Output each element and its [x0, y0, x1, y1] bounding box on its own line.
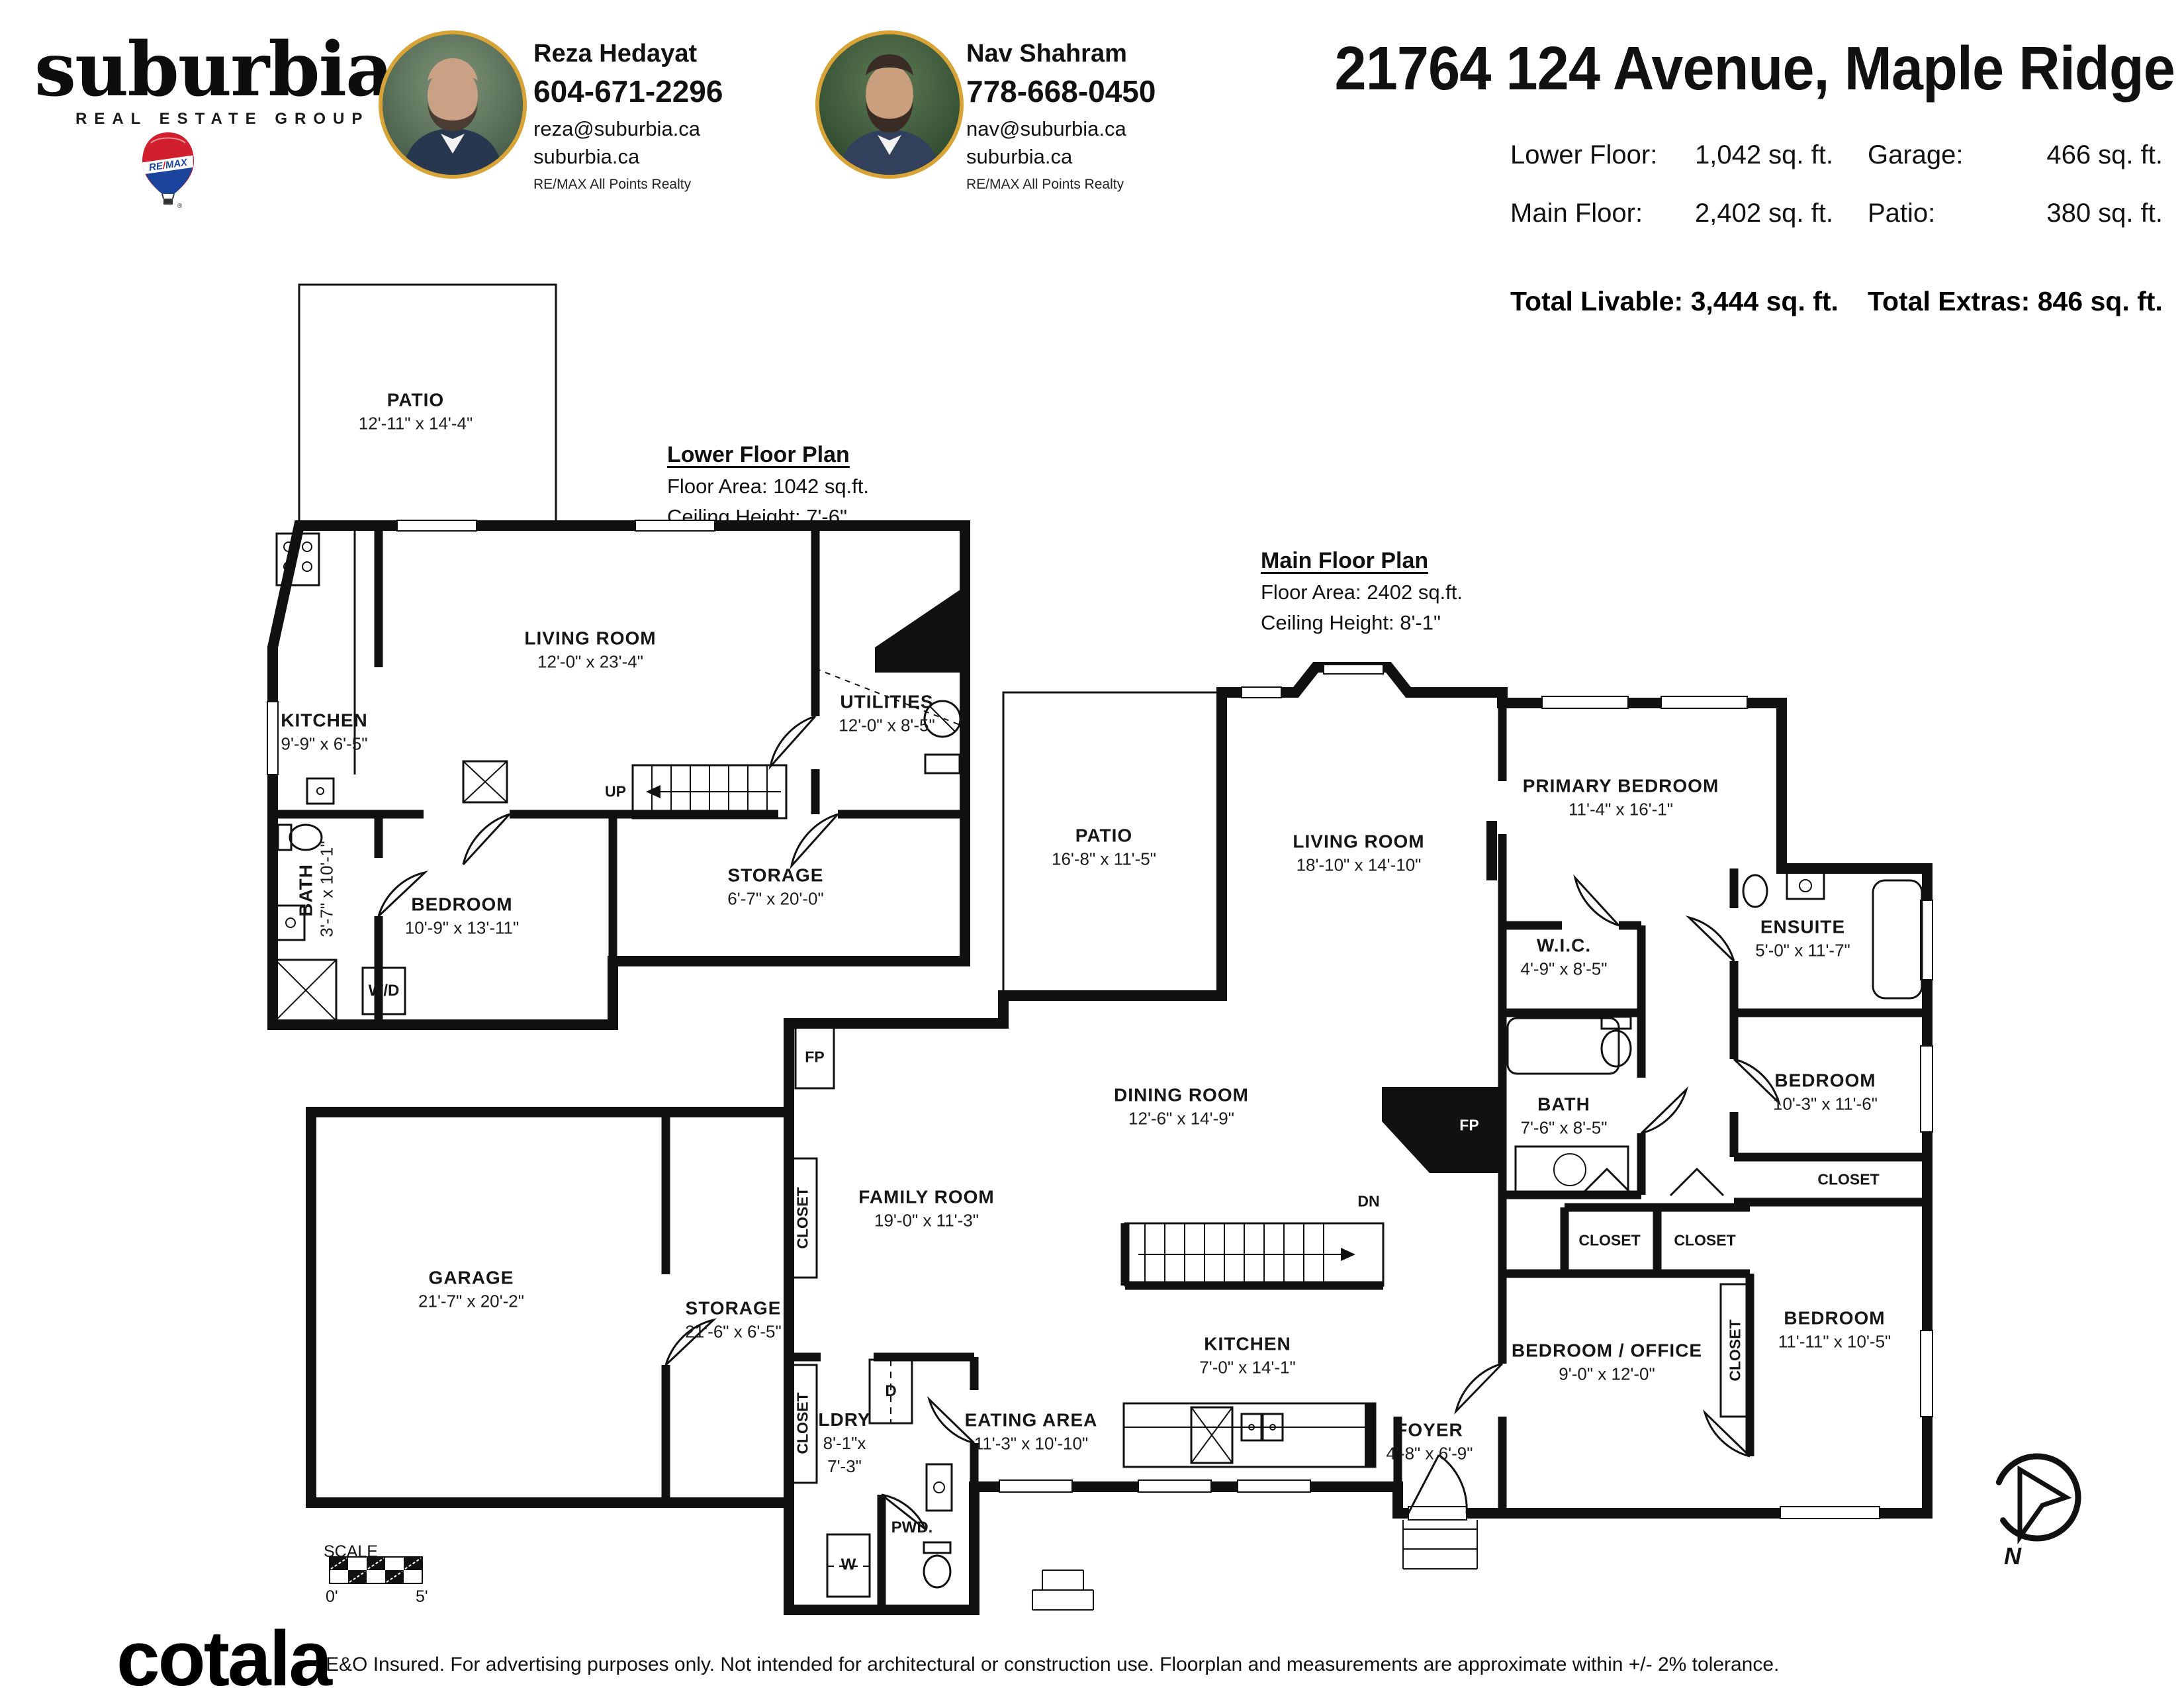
washer-dryer-label: W/D — [369, 982, 400, 1000]
room-label-primary-bedroom: PRIMARY BEDROOM11'-4" x 16'-1" — [1523, 776, 1719, 820]
room-label-bedroom-office: BEDROOM / OFFICE9'-0" x 12'-0" — [1512, 1340, 1702, 1385]
stairs-up-label: UP — [605, 783, 626, 801]
room-label-lower-kitchen: KITCHEN9'-9" x 6'-5" — [281, 710, 367, 755]
powder-room-label: PWD. — [891, 1519, 933, 1537]
fireplace-label-family: FP — [805, 1049, 824, 1066]
scale-bar — [330, 1557, 422, 1583]
room-label-eating: EATING AREA11'-3" x 10'-10" — [965, 1410, 1098, 1454]
room-label-main-bath: BATH7'-6" x 8'-5" — [1521, 1094, 1608, 1139]
closet-label-ldry: CLOSET — [794, 1392, 812, 1454]
room-label-bedroom-lower-right: BEDROOM11'-11" x 10'-5" — [1778, 1308, 1891, 1352]
room-label-bedroom-upper-right: BEDROOM10'-3" x 11'-6" — [1773, 1070, 1878, 1115]
dryer-label: D — [885, 1382, 896, 1401]
compass-icon — [1996, 1456, 2078, 1538]
closet-label-bedroom-office: CLOSET — [1727, 1319, 1745, 1381]
room-label-lower-utilities: UTILITIES12'-0" x 8'-5" — [839, 692, 934, 736]
room-label-main-kitchen: KITCHEN7'-0" x 14'-1" — [1199, 1334, 1295, 1378]
closet-label-family: CLOSET — [794, 1187, 812, 1248]
closet-label-hall-2: CLOSET — [1674, 1232, 1735, 1250]
room-label-main-living: LIVING ROOM18'-10" x 14'-10" — [1293, 831, 1424, 876]
room-label-main-storage: STORAGE21'-6" x 6'-5" — [685, 1298, 781, 1342]
fireplace-label-dining: FP — [1459, 1117, 1479, 1135]
room-label-lower-patio: PATIO12'-11" x 14'-4" — [359, 390, 473, 434]
floorplan-page: suburbia. REAL ESTATE GROUP RE/MAX ® — [0, 0, 2184, 1688]
room-label-lower-storage: STORAGE6'-7" x 20'-0" — [727, 865, 823, 910]
room-label-ensuite: ENSUITE5'-0" x 11'-7" — [1755, 917, 1850, 961]
washer-label: W — [841, 1556, 856, 1574]
closet-label-bedroom-ur: CLOSET — [1817, 1171, 1879, 1189]
room-label-dining: DINING ROOM12'-6" x 14'-9" — [1114, 1085, 1249, 1129]
room-label-lower-bedroom: BEDROOM10'-9" x 13'-11" — [405, 894, 519, 939]
compass-north-label: N — [2004, 1542, 2021, 1570]
room-label-lower-bath: BATH3'-7" x 10'-1" — [296, 841, 338, 939]
room-label-lower-living: LIVING ROOM12'-0" x 23'-4" — [524, 628, 656, 673]
room-label-wic: W.I.C.4'-9" x 8'-5" — [1521, 935, 1608, 980]
room-label-garage: GARAGE21'-7" x 20'-2" — [418, 1268, 524, 1312]
room-label-main-patio: PATIO16'-8" x 11'-5" — [1052, 825, 1156, 870]
room-label-ldry: LDRY8'-1"x7'-3" — [818, 1409, 870, 1477]
closet-label-hall-1: CLOSET — [1578, 1232, 1640, 1250]
stairs-dn-label: DN — [1357, 1193, 1379, 1211]
room-label-foyer: FOYER4'-8" x 6'-9" — [1387, 1420, 1473, 1464]
room-label-family: FAMILY ROOM19'-0" x 11'-3" — [858, 1187, 994, 1231]
